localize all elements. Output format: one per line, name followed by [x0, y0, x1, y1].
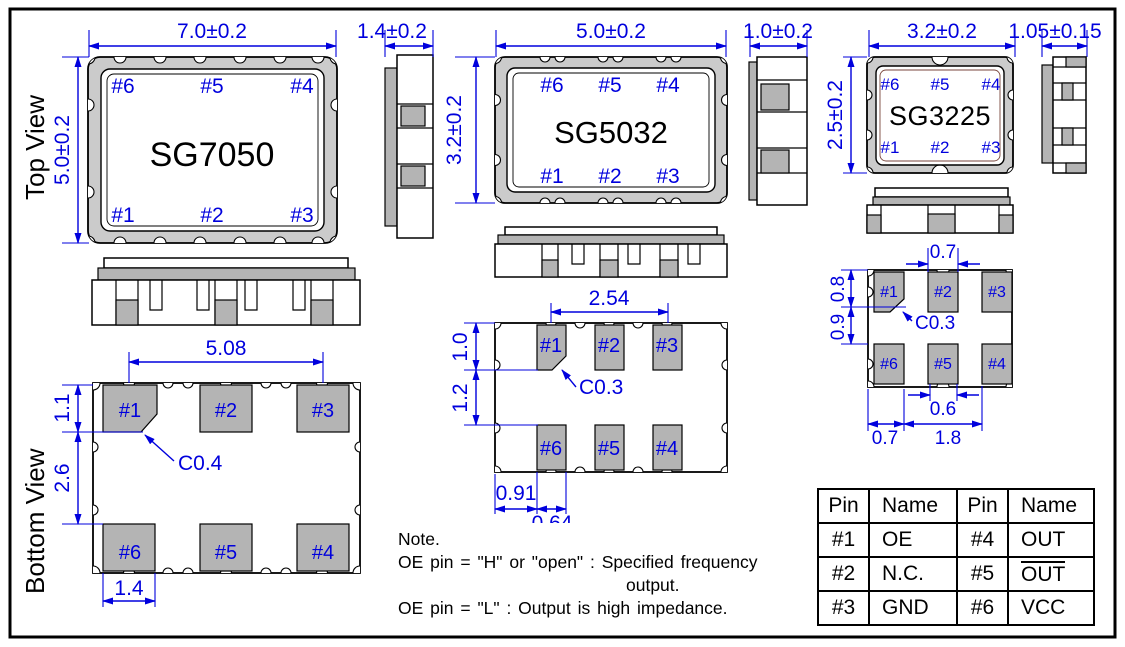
front-pad — [311, 300, 333, 325]
dim-text: 3.2±0.2 — [443, 95, 466, 165]
dim-text: 5.0±0.2 — [576, 20, 646, 43]
dim-text: 1.4 — [114, 577, 144, 600]
pin-label: #1 — [111, 204, 134, 227]
pin-label: #4 — [982, 75, 1001, 94]
pad-label: #5 — [598, 438, 620, 460]
pin-label: #2 — [931, 138, 950, 157]
front-pad — [660, 260, 678, 277]
side-pad — [1062, 83, 1073, 100]
pin-assignment-table: Pin Name Pin Name #1 OE #4 OUT #2 N.C. #… — [817, 488, 1095, 626]
name-cell: VCC — [1008, 591, 1094, 625]
sg3225-top-view: SG3225 #6 #5 #4 #1 #2 #3 — [861, 49, 1019, 181]
col-header: Name — [1008, 489, 1094, 523]
sg7050-dim-height: 5.0±0.2 — [51, 57, 89, 243]
sg7050-part-name: SG7050 — [150, 136, 275, 174]
dim-text: 0.7 — [930, 242, 956, 263]
pin-label: #6 — [881, 75, 900, 94]
lid-side — [873, 197, 1010, 205]
side-pad — [761, 84, 789, 110]
sg7050-dim-thickness: 1.4±0.2 — [357, 20, 433, 57]
pin-cell: #6 — [957, 591, 1008, 625]
bottom-view-label: Bottom View — [20, 448, 50, 594]
pin-cell: #5 — [957, 557, 1008, 591]
table-row: #3 GND #6 VCC — [818, 591, 1094, 625]
pin-cell: #2 — [818, 557, 869, 591]
sg7050-side-body — [397, 55, 433, 238]
pad-label: #5 — [934, 356, 952, 373]
dim-text: 0.7 — [872, 428, 898, 449]
side-pad — [401, 106, 425, 126]
dim-text: 7.0±0.2 — [177, 20, 247, 43]
dim-text: 1.0±0.2 — [743, 20, 813, 43]
name-cell: OE — [869, 523, 957, 557]
package-drawing-page: Top View Bottom View SG7050 #6 #5 #4 #1 … — [0, 0, 1125, 647]
side-pad — [1062, 128, 1073, 145]
pad-label: #2 — [598, 335, 620, 357]
dim-text: 0.9 — [828, 314, 849, 340]
sg5032-side-lid — [749, 62, 757, 200]
sg7050-dim-width: 7.0±0.2 — [89, 20, 336, 57]
pad-label: #3 — [656, 335, 678, 357]
pad-label: #4 — [988, 356, 1006, 373]
pin-label: #1 — [881, 138, 900, 157]
pin-cell: #4 — [957, 523, 1008, 557]
top-view-label: Top View — [20, 95, 50, 200]
sg5032-dim-width: 5.0±0.2 — [496, 20, 726, 57]
pin-cell: #1 — [818, 523, 869, 557]
side-pad — [401, 166, 425, 186]
chamfer-text: C0.3 — [579, 376, 623, 399]
pin-label: #4 — [290, 75, 314, 98]
sg3225-dim-height: 2.5±0.2 — [824, 57, 867, 173]
dim-text: 5.0±0.2 — [51, 115, 74, 185]
pad-label: #6 — [540, 438, 562, 460]
name-cell-overline: OUT — [1008, 557, 1094, 591]
sg7050-side-view — [385, 55, 433, 238]
pad-label: #3 — [988, 284, 1006, 301]
sg3225-side-body — [1053, 57, 1086, 173]
pad-label: #2 — [215, 400, 237, 422]
out-bar-label: OUT — [1021, 561, 1065, 586]
side-pad — [1066, 163, 1086, 173]
sg5032-side-body — [757, 57, 807, 205]
pin-label: #5 — [598, 74, 621, 97]
dim-text: 1.4±0.2 — [357, 20, 427, 43]
dim-text: 3.2±0.2 — [907, 20, 977, 43]
pin-label: #3 — [982, 138, 1001, 157]
lid-top — [104, 258, 348, 268]
front-pad — [867, 215, 881, 233]
pin-cell: #3 — [818, 591, 869, 625]
note-line: output. — [398, 574, 798, 597]
pin-label: #6 — [111, 75, 134, 98]
sg3225-dim-thickness: 1.05±0.15 — [1008, 20, 1101, 57]
pin-label: #6 — [540, 74, 563, 97]
sg7050-front-view — [92, 258, 360, 325]
name-cell: GND — [869, 591, 957, 625]
sg5032-front-view — [495, 227, 727, 277]
front-pad — [116, 300, 138, 325]
pin-label: #4 — [656, 74, 680, 97]
pin-label: #3 — [290, 204, 313, 227]
lid-side — [98, 268, 355, 280]
lid-top — [875, 188, 1008, 197]
note-block: Note. OE pin = "H" or "open" : Specified… — [398, 528, 798, 620]
dim-text: 1.2 — [449, 383, 472, 412]
pin-label: #1 — [540, 165, 563, 188]
pin-label: #2 — [598, 165, 621, 188]
front-pad — [928, 214, 955, 233]
sg5032-dim-thickness: 1.0±0.2 — [743, 20, 813, 57]
lid-side — [498, 235, 724, 244]
col-header: Pin — [957, 489, 1008, 523]
note-line: OE pin = "L" : Output is high impedance. — [398, 597, 798, 620]
dim-text: 1.1 — [51, 393, 74, 422]
sg3225-front-view — [867, 188, 1013, 233]
dim-text: 2.6 — [51, 463, 74, 492]
pad-label: #4 — [312, 542, 334, 564]
sg3225-dim-width: 3.2±0.2 — [869, 20, 1015, 57]
sg7050-bottom-view: #1 #2 #3 #6 #5 #4 — [86, 376, 367, 580]
front-pad — [600, 260, 618, 277]
col-header: Name — [869, 489, 957, 523]
pad-label: #1 — [880, 284, 898, 301]
front-pad — [215, 300, 237, 325]
table-row: #1 OE #4 OUT — [818, 523, 1094, 557]
sg7050-side-lid — [385, 68, 397, 226]
pad-label: #4 — [656, 438, 678, 460]
col-header: Pin — [818, 489, 869, 523]
sg5032-top-view: SG5032 #6 #5 #4 #1 #2 #3 — [489, 51, 734, 210]
lid-top — [505, 227, 717, 235]
dim-text: 2.5±0.2 — [824, 80, 847, 150]
sg3225-side-lid — [1042, 65, 1053, 163]
sg5032-side-view — [749, 57, 807, 205]
sg7050-top-view: SG7050 #6 #5 #4 #1 #2 #3 — [81, 50, 344, 250]
dim-text: 1.8 — [935, 428, 961, 449]
dim-text: 1.0 — [449, 332, 472, 361]
table-row: #2 N.C. #5 OUT — [818, 557, 1094, 591]
pin-label: #5 — [200, 75, 223, 98]
sg3225-part-name: SG3225 — [889, 101, 991, 131]
sg5032-dim-height: 3.2±0.2 — [443, 57, 495, 203]
name-cell: N.C. — [869, 557, 957, 591]
pin-label: #2 — [200, 204, 223, 227]
sg3225-side-view — [1042, 57, 1086, 173]
dim-text: 1.05±0.15 — [1008, 20, 1101, 43]
front-pad — [999, 215, 1013, 233]
name-cell: OUT — [1008, 523, 1094, 557]
chamfer-text: C0.3 — [915, 313, 955, 334]
pad-label: #1 — [119, 400, 141, 422]
dim-text: 2.54 — [589, 287, 630, 310]
pad-label: #2 — [934, 284, 952, 301]
note-line: OE pin = "H" or "open" : Specified frequ… — [398, 551, 798, 574]
pad-label: #1 — [540, 335, 562, 357]
side-pad — [1066, 57, 1086, 67]
side-pad — [761, 150, 789, 173]
dim-text: 0.91 — [496, 482, 537, 505]
pin-label: #3 — [656, 165, 679, 188]
front-pad — [542, 260, 558, 277]
pad-label: #6 — [880, 356, 898, 373]
pad-label: #5 — [215, 542, 237, 564]
table-header-row: Pin Name Pin Name — [818, 489, 1094, 523]
dim-text: 0.6 — [930, 399, 956, 420]
dim-text: 0.8 — [828, 276, 849, 302]
sg5032-part-name: SG5032 — [554, 115, 668, 150]
pin-label: #5 — [931, 75, 950, 94]
pad-label: #6 — [119, 542, 141, 564]
dim-text: 5.08 — [206, 337, 247, 360]
pad-label: #3 — [312, 400, 334, 422]
note-title: Note. — [398, 528, 798, 551]
chamfer-text: C0.4 — [178, 452, 223, 475]
